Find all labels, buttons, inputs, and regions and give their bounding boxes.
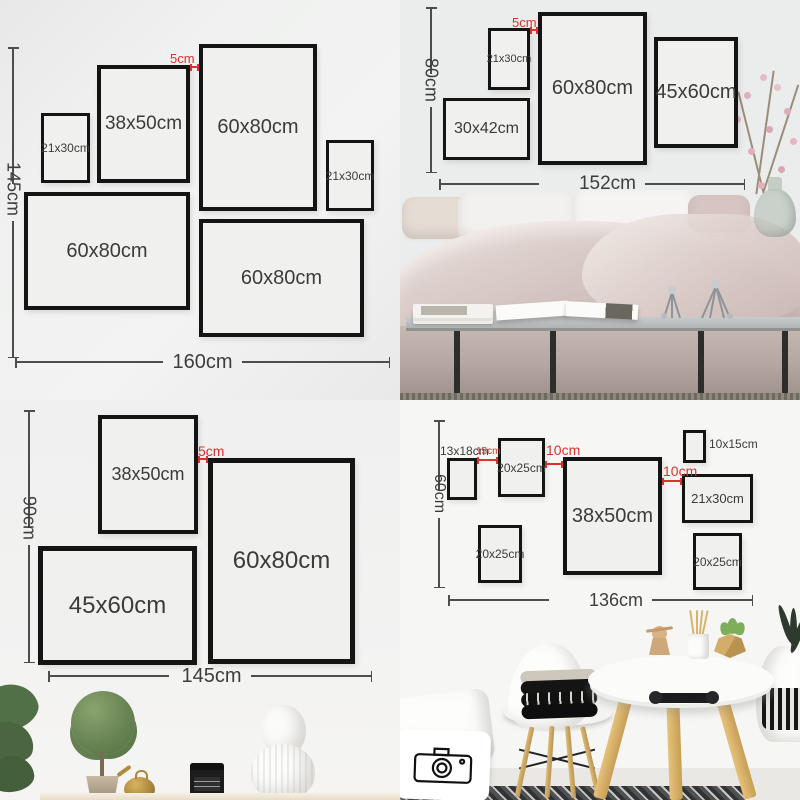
frame-size-label: 60x80cm bbox=[233, 547, 330, 575]
frame-layout-collage: 21x30cm38x50cm60x80cm21x30cm60x80cm60x80… bbox=[0, 0, 800, 800]
diagram-overlay: 38x50cm60x80cm45x60cm5cm90cm145cm bbox=[0, 400, 400, 800]
horizontal-dimension: 160cm bbox=[15, 350, 390, 374]
gap-indicator-line bbox=[530, 29, 538, 31]
frame-size-label: 20x25cm bbox=[693, 555, 742, 569]
diagram-overlay: 21x30cm60x80cm45x60cm30x42cm5cm80cm152cm bbox=[400, 0, 800, 400]
horizontal-dimension-label: 152cm bbox=[579, 173, 636, 195]
frame-size-label: 38x50cm bbox=[105, 113, 182, 135]
frame-60x80cm: 60x80cm bbox=[208, 458, 355, 664]
gap-indicator-line bbox=[545, 463, 563, 465]
frame-38x50cm: 38x50cm bbox=[98, 415, 198, 534]
horizontal-dimension-label: 136cm bbox=[589, 590, 643, 611]
frame-size-label: 45x60cm bbox=[655, 81, 736, 104]
frame-60x80cm: 60x80cm bbox=[24, 192, 190, 310]
frame-size-label: 60x80cm bbox=[66, 240, 147, 263]
horizontal-dimension: 152cm bbox=[439, 172, 745, 196]
gap-indicator-line bbox=[477, 459, 498, 461]
gap-indicator-line bbox=[662, 480, 682, 482]
frame-20x25cm: 20x25cm bbox=[693, 533, 742, 590]
frame-size-label: 60x80cm bbox=[241, 267, 322, 290]
frame-21x30cm: 21x30cm bbox=[41, 113, 90, 183]
frame-60x80cm: 60x80cm bbox=[538, 12, 647, 165]
frame-21x30cm: 21x30cm bbox=[326, 140, 374, 211]
horizontal-dimension-label: 145cm bbox=[181, 665, 241, 688]
horizontal-dimension: 136cm bbox=[448, 588, 753, 612]
gap-indicator-line bbox=[198, 458, 208, 460]
frame-20x25cm: 20x25cm bbox=[478, 525, 522, 583]
vertical-dimension-label: 60cm bbox=[430, 474, 448, 513]
frame-size-label: 21x30cm bbox=[487, 53, 532, 65]
quadrant-bottom-left-shelf: 38x50cm60x80cm45x60cm5cm90cm145cm bbox=[0, 400, 400, 800]
gap-size-label: 5cm bbox=[198, 443, 224, 459]
frame-size-label: 21x30cm bbox=[691, 491, 744, 506]
vertical-dimension-label: 90cm bbox=[19, 496, 40, 540]
vertical-dimension-label: 145cm bbox=[3, 162, 24, 216]
gap-size-label: 15cm bbox=[476, 446, 500, 457]
gap-size-label: 5cm bbox=[512, 15, 537, 30]
horizontal-dimension: 145cm bbox=[48, 664, 372, 688]
frame-size-label: 30x42cm bbox=[454, 120, 519, 138]
frame-size-label: 45x60cm bbox=[69, 592, 166, 620]
frame-size-label: 21x30cm bbox=[326, 169, 375, 183]
vertical-dimension: 145cm bbox=[1, 47, 25, 358]
frame-45x60cm: 45x60cm bbox=[654, 37, 738, 148]
frame-38x50cm: 38x50cm bbox=[97, 65, 190, 183]
diagram-overlay: 13x18cm20x25cm38x50cm10x15cm21x30cm20x25… bbox=[400, 400, 800, 800]
frame-60x80cm: 60x80cm bbox=[199, 44, 317, 211]
frame-20x25cm: 20x25cm bbox=[498, 438, 545, 497]
frame-45x60cm: 45x60cm bbox=[38, 546, 197, 665]
quadrant-top-right-bedroom: 21x30cm60x80cm45x60cm30x42cm5cm80cm152cm bbox=[400, 0, 800, 400]
frame-21x30cm: 21x30cm bbox=[488, 28, 530, 90]
gap-indicator-line bbox=[190, 66, 199, 68]
diagram-overlay: 21x30cm38x50cm60x80cm21x30cm60x80cm60x80… bbox=[0, 0, 400, 400]
horizontal-dimension-label: 160cm bbox=[172, 351, 232, 374]
frame-size-label: 10x15cm bbox=[709, 437, 758, 451]
frame-21x30cm: 21x30cm bbox=[682, 474, 753, 523]
frame-size-label: 20x25cm bbox=[497, 461, 546, 475]
frame-10x15cm: 10x15cm bbox=[683, 430, 706, 463]
frame-38x50cm: 38x50cm bbox=[563, 457, 662, 575]
frame-60x80cm: 60x80cm bbox=[199, 219, 364, 337]
vertical-dimension-label: 80cm bbox=[421, 58, 442, 102]
frame-size-label: 60x80cm bbox=[217, 116, 298, 139]
vertical-dimension: 90cm bbox=[17, 410, 41, 663]
frame-size-label: 60x80cm bbox=[552, 77, 633, 100]
frame-size-label: 38x50cm bbox=[572, 505, 653, 528]
frame-size-label: 21x30cm bbox=[41, 141, 90, 155]
quadrant-bottom-right-dining: 13x18cm20x25cm38x50cm10x15cm21x30cm20x25… bbox=[400, 400, 800, 800]
gap-size-label: 10cm bbox=[546, 442, 580, 458]
frame-13x18cm: 13x18cm bbox=[447, 458, 477, 500]
vertical-dimension: 80cm bbox=[419, 7, 443, 173]
vertical-dimension: 60cm bbox=[427, 420, 451, 588]
frame-size-label: 38x50cm bbox=[111, 464, 184, 485]
frame-30x42cm: 30x42cm bbox=[443, 98, 530, 160]
quadrant-top-left-diagram: 21x30cm38x50cm60x80cm21x30cm60x80cm60x80… bbox=[0, 0, 400, 400]
frame-size-label: 20x25cm bbox=[476, 547, 525, 561]
